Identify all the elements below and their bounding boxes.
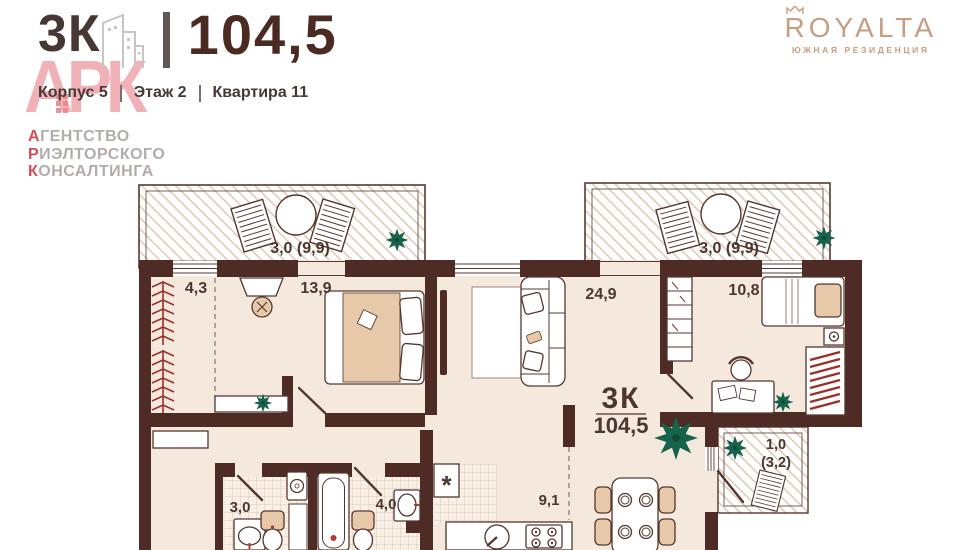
plant-icon bbox=[386, 229, 409, 252]
dining-table bbox=[612, 478, 658, 550]
bath-cabinet bbox=[289, 504, 307, 550]
room-label-balcony-right: 3,0 (9,9) bbox=[699, 240, 759, 257]
plant-icon bbox=[773, 392, 794, 413]
brand-subtitle: ЮЖНАЯ РЕЗИДЕНЦИЯ bbox=[785, 45, 937, 55]
room-label-bathroom-small: 3,0 bbox=[230, 499, 251, 516]
plant-icon bbox=[723, 436, 747, 460]
room-label-bedroom-second: 10,8 bbox=[728, 282, 759, 299]
tv bbox=[440, 290, 447, 375]
buildings-icon bbox=[93, 10, 149, 72]
crown-icon bbox=[786, 6, 804, 15]
room-label-wardrobe: 4,3 bbox=[185, 280, 207, 297]
apartment-label: Квартира 11 bbox=[213, 84, 309, 102]
brand-name: ROYALTA bbox=[785, 14, 937, 42]
room-label-loggia: 1,0 bbox=[766, 437, 786, 453]
room-label-living: 24,9 bbox=[585, 286, 616, 303]
floor-label: Этаж 2 bbox=[134, 84, 187, 102]
rug bbox=[472, 287, 523, 378]
room-label-kitchen: 9,1 bbox=[539, 492, 560, 509]
room-label-bathroom-large: 4,0 bbox=[376, 496, 397, 513]
stove bbox=[526, 525, 562, 548]
header: 3К 104,5 Корпус 5 Этаж 2 Квар bbox=[38, 8, 338, 102]
title-divider bbox=[163, 12, 170, 68]
plan-summary-rooms: 3К bbox=[602, 382, 641, 415]
fridge-mark: * bbox=[441, 470, 452, 500]
rooms-count: 3К bbox=[38, 8, 101, 60]
building-label: Корпус 5 bbox=[38, 84, 108, 102]
plan-summary-area: 104,5 bbox=[593, 413, 648, 438]
total-area: 104,5 bbox=[188, 8, 338, 61]
room-label-bedroom-main: 13,9 bbox=[300, 280, 331, 297]
toilet bbox=[352, 511, 374, 530]
hall-console bbox=[153, 431, 208, 448]
breadcrumb: Корпус 5 Этаж 2 Квартира 11 bbox=[38, 84, 338, 102]
console-shelf bbox=[215, 396, 288, 412]
plant-icon bbox=[254, 394, 272, 412]
desk-chair bbox=[731, 360, 751, 380]
plant-icon bbox=[654, 416, 698, 460]
page: АРК АГЕНТСТВО РИЭЛТОРСКОГО КОНСАЛТИНГА 3… bbox=[0, 0, 958, 550]
balcony-table bbox=[276, 195, 316, 235]
room-label-balcony-left: 3,0 (9,9) bbox=[270, 240, 330, 257]
balcony-table bbox=[701, 194, 741, 234]
plant-icon bbox=[813, 227, 836, 250]
royalta-logo: ROYALTA ЮЖНАЯ РЕЗИДЕНЦИЯ bbox=[785, 14, 937, 55]
room-label-loggia-total: (3,2) bbox=[761, 455, 791, 471]
